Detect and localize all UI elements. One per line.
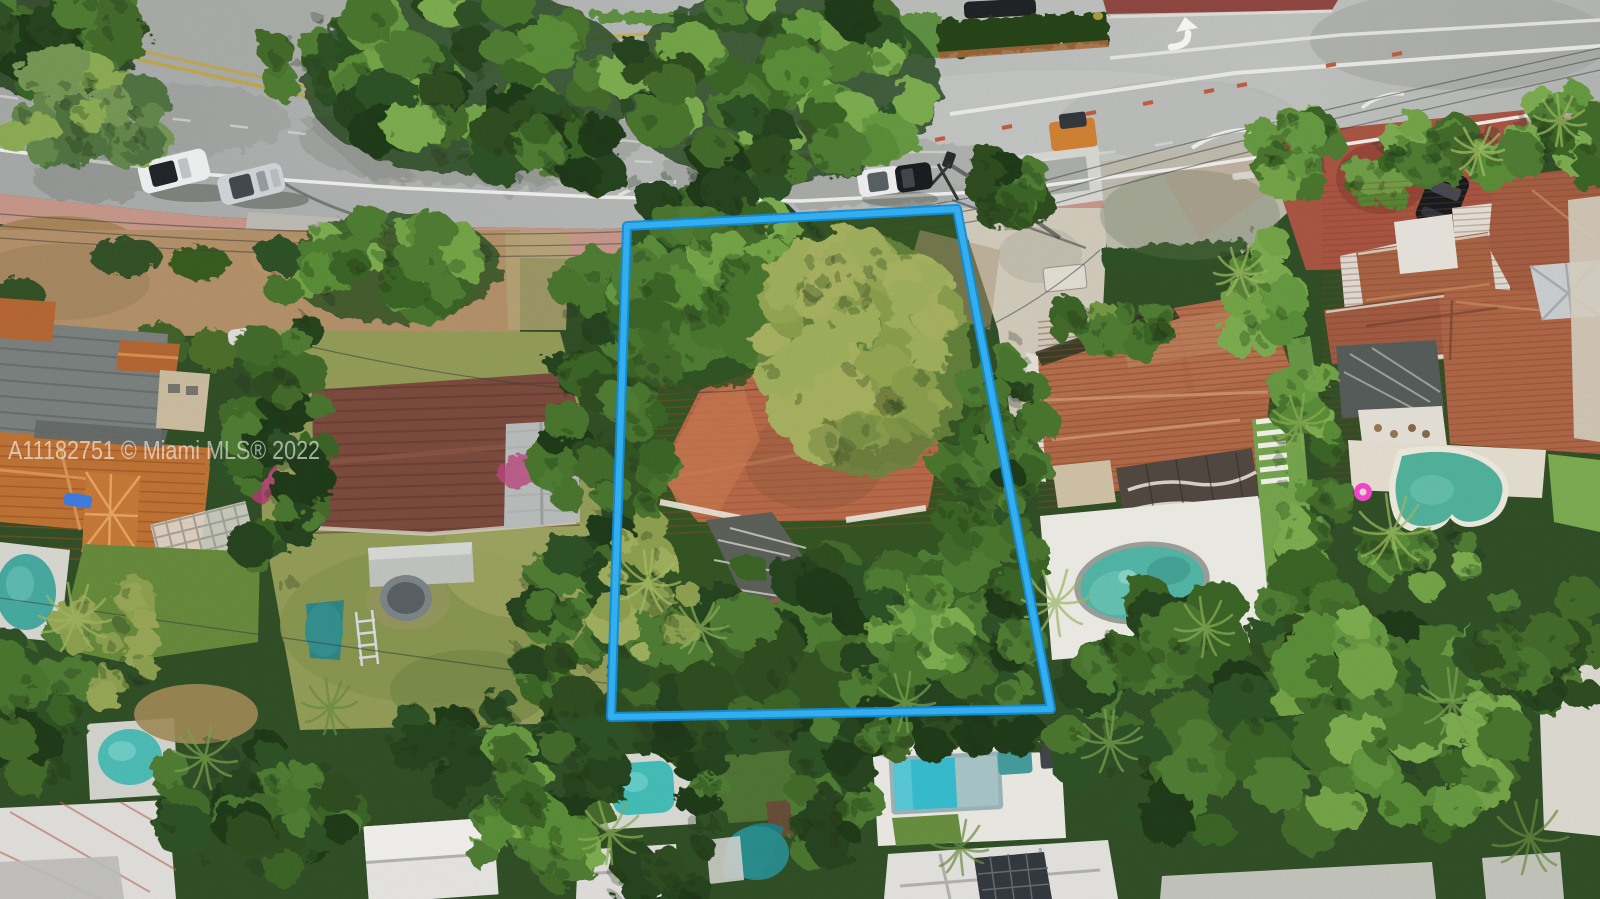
svg-text:A11182751 © Miami MLS® 2022: A11182751 © Miami MLS® 2022 [8, 435, 320, 465]
